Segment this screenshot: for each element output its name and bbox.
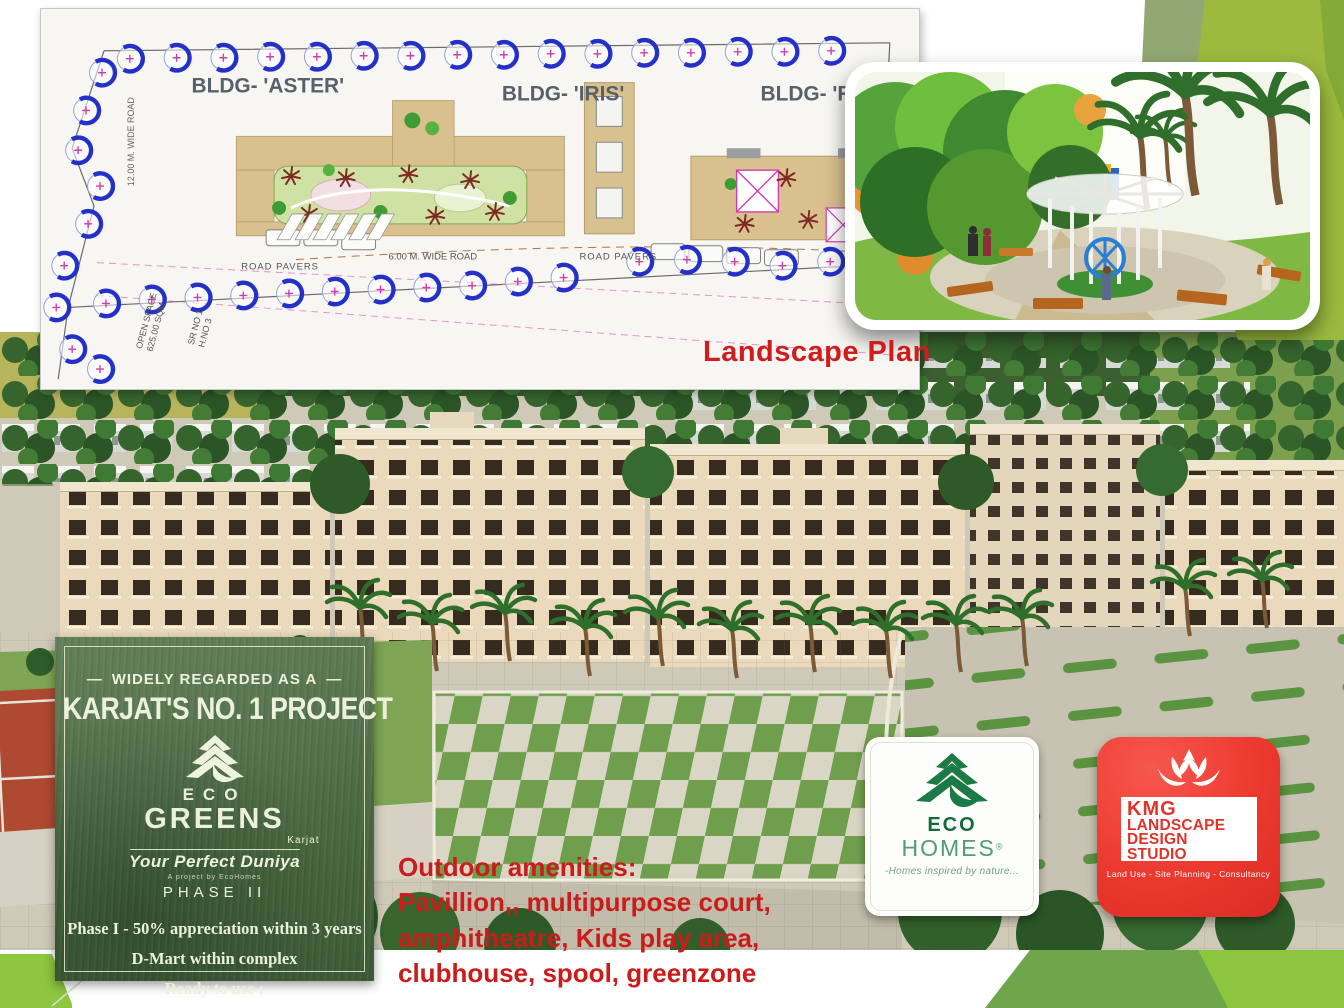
feature-amenities: Swimming Pool, Club House, Play Area: [55, 1004, 374, 1008]
brand-slogan: Your Perfect Duniya: [55, 852, 374, 872]
feature-dmart: D-Mart within complex: [55, 944, 374, 974]
garden-render-card: [845, 62, 1320, 330]
brand-eco: ECO: [55, 785, 374, 805]
kmg-tagline: Land Use - Site Planning - Consultancy: [1097, 869, 1280, 879]
kmg-lotus-icon: [1152, 749, 1226, 793]
brochure-slide: BLDG- 'ASTER' BLDG- 'IRIS' BLDG- 'ROSA' …: [0, 0, 1344, 1008]
tagline-dash-right: —: [326, 671, 342, 688]
kmg-logo-card: KMG LANDSCAPE DESIGN STUDIO Land Use - S…: [1097, 737, 1280, 917]
promo-tagline: — WIDELY REGARDED AS A —: [55, 671, 374, 688]
plan-label-road-6m: 6.00 M. WIDE ROAD: [388, 252, 477, 263]
feature-appreciation: Phase I - 50% appreciation within 3 year…: [55, 914, 374, 944]
plan-label-road-12m: 12.00 M. WIDE ROAD: [126, 97, 136, 186]
eco-greens-tree-icon: [180, 735, 250, 783]
landscape-plan-panel: BLDG- 'ASTER' BLDG- 'IRIS' BLDG- 'ROSA' …: [40, 8, 920, 390]
landscape-plan-caption: Landscape Plan: [703, 336, 931, 369]
amenities-line-3: clubhouse, spool, greenzone: [398, 956, 808, 991]
amenities-heading: Outdoor amenities:: [398, 850, 808, 885]
outdoor-amenities-text: Outdoor amenities: Pavillion,, multipurp…: [398, 850, 808, 991]
promo-features: Phase I - 50% appreciation within 3 year…: [55, 914, 374, 1008]
plan-label-road-pavers-right: ROAD PAVERS: [579, 252, 657, 263]
amenities-line-1: Pavillion,, multipurpose court,: [398, 885, 808, 920]
brand-project-by: A project by EcoHomes: [55, 874, 374, 881]
kmg-studio: STUDIO: [1127, 848, 1257, 862]
promo-title: KARJAT'S NO. 1 PROJECT: [63, 691, 366, 727]
tagline-text: WIDELY REGARDED AS A: [112, 671, 318, 688]
garden-render-scene: [855, 72, 1310, 320]
tagline-dash-left: —: [87, 671, 103, 688]
brand-greens: GREENS: [55, 805, 374, 834]
plan-label-road-pavers-left: ROAD PAVERS: [241, 262, 319, 273]
eco-homes-card-frame: [870, 742, 1034, 911]
promo-card: — WIDELY REGARDED AS A — KARJAT'S NO. 1 …: [55, 637, 374, 981]
landscape-plan-drawing: BLDG- 'ASTER' BLDG- 'IRIS' BLDG- 'ROSA' …: [41, 9, 917, 387]
brand-rule: [130, 849, 300, 850]
brand-phase: PHASE II: [55, 884, 374, 901]
plan-label-iris: BLDG- 'IRIS': [502, 83, 624, 106]
brand-location: Karjat: [110, 835, 320, 846]
plan-label-aster: BLDG- 'ASTER': [192, 75, 345, 98]
amenities-line-2: amphitheatre, Kids play area,: [398, 921, 808, 956]
feature-ready: Ready to use :: [55, 974, 374, 1004]
eco-homes-logo-card: ECO HOMES® -Homes inspired by nature...: [865, 737, 1039, 916]
kmg-wordmark-box: KMG LANDSCAPE DESIGN STUDIO: [1121, 797, 1257, 861]
